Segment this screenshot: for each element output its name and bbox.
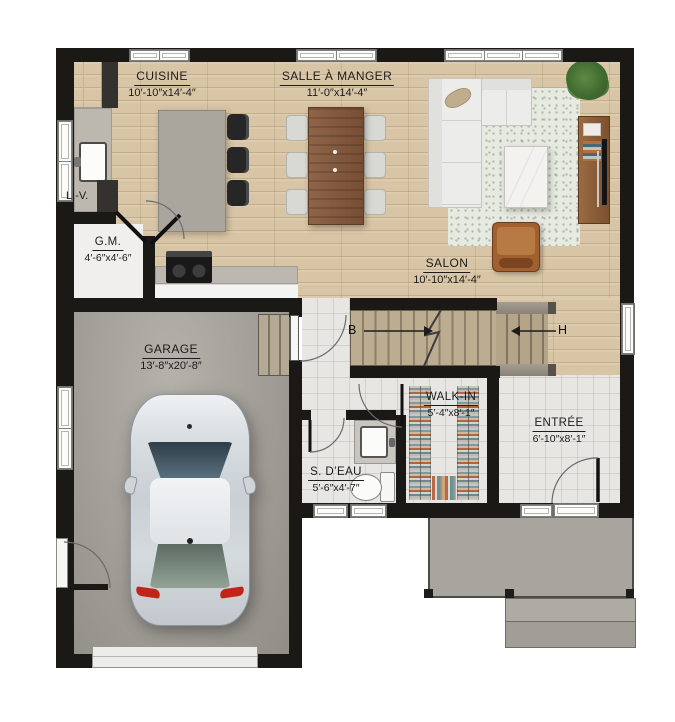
tv-screen [602,139,607,205]
vanity-sink [360,426,388,458]
garage-entry-steps [258,314,290,376]
entree-name: ENTRÉE [532,417,585,432]
window-pane [59,388,71,428]
island-stool [227,114,249,140]
tv-console [578,116,610,224]
dining-chair [364,115,386,141]
kitchen-cabinet-band [155,284,298,298]
walkin-label: WALK-IN 5′-4″x8′-1″ [424,387,478,419]
console-decor-white [583,123,601,136]
stairs-up-letter: H [558,323,567,337]
island-stool [227,180,249,206]
wall-stairs-top [350,298,497,310]
wall-sdeau-top-a [302,410,311,420]
window-pane [522,506,551,516]
cuisine-label: CUISINE 10′-10″x14′-4″ [128,67,196,99]
stairs-down-flight [350,310,497,366]
entree-dims: 6′-10″x8′-1″ [532,433,585,445]
salle-a-manger-name: SALLE À MANGER [280,70,394,86]
car-roof [150,478,230,544]
counter-end-cabinet [97,180,118,214]
railing-cap [548,302,556,314]
kitchen-island [158,110,226,232]
lave-vaisselle-label: L.-V. [66,190,88,202]
porch-post [424,589,433,598]
window-pane [352,506,385,516]
entree-label: ENTRÉE 6′-10″x8′-1″ [532,413,585,445]
walkin-dims: 5′-4″x8′-1″ [424,407,478,419]
wall-gm-right [143,236,155,298]
toilet-tank [380,472,395,502]
kitchen-sink [79,142,107,182]
table-candle [333,150,337,154]
garage-label: GARAGE 13′-8″x20′-8″ [140,340,201,372]
wall-sdeau-walkin [396,415,406,505]
stove [166,251,212,283]
window-top-salon [444,49,563,62]
window-right-entree [621,303,635,355]
car [128,392,252,628]
window-top-kitchen [129,49,190,62]
garage-door [92,646,258,668]
window-pane [555,505,597,516]
stairs-up-railing-top [496,302,556,314]
gm-name: G.M. [93,236,124,251]
wall-stairs-bottom [350,366,500,378]
car-hood-emblem [187,424,192,429]
cuisine-dims: 10′-10″x14′-4″ [128,87,196,100]
window-pane [446,51,484,60]
armchair [492,222,540,272]
dining-chair [286,152,308,178]
window-top-dining [296,49,377,62]
salon-name: SALON [424,257,471,273]
window-pane [59,429,71,469]
salle-a-manger-dims: 11′-0″x14′-4″ [280,87,394,100]
garage-side-door-opening [56,538,68,588]
wall-garage-right-lower [289,360,302,654]
garage-dims: 13′-8″x20′-8″ [140,360,201,373]
dining-chair [286,115,308,141]
window-sdeau-2 [350,504,387,518]
porch-step [505,621,636,648]
car-antenna [187,538,193,544]
vanity-faucet [389,438,395,447]
window-pane [315,506,346,516]
plant [566,60,608,100]
garage-hall-door-leaf [290,315,299,361]
wall-garage-top [56,298,302,312]
front-door-threshold [553,503,599,518]
dining-chair [286,189,308,215]
sdeau-name: S. D’EAU [308,466,364,481]
window-pane [523,51,561,60]
stairs-up-railing-bottom [496,364,556,376]
armchair-cushion [497,227,535,255]
porch-post [626,589,634,598]
salle-a-manger-label: SALLE À MANGER 11′-0″x14′-4″ [280,67,394,99]
window-entree-sidelight [520,504,553,518]
island-stool [227,147,249,173]
window-pane [337,51,375,60]
window-pane [59,122,71,161]
porch-step [505,598,636,623]
window-left-garage [57,386,73,470]
salon-dims: 10′-10″x14′-4″ [413,274,481,287]
window-pane [160,51,188,60]
stairs-up-flight [496,314,548,364]
garage-name: GARAGE [142,343,200,359]
car-rear-window [148,544,232,588]
kitchen-faucet [74,157,81,167]
wall-walkin-entree [487,366,499,505]
walkin-name: WALK-IN [424,391,478,406]
wall-sdeau-top-b [346,410,396,420]
soundbar [597,151,599,207]
cuisine-name: CUISINE [134,70,189,86]
stairs-down-letter: B [348,323,356,337]
window-pane [623,305,633,353]
front-porch [428,518,634,598]
table-candle [333,168,337,172]
window-pane [131,51,159,60]
walkin-shoe-row [432,476,456,500]
floor-plan: CUISINE 10′-10″x14′-4″ SALLE À MANGER 11… [0,0,675,722]
salon-label: SALON 10′-10″x14′-4″ [413,254,481,286]
wall-gm-top [56,212,116,224]
dining-chair [364,152,386,178]
sdeau-label: S. D’EAU 5′-6″x4′-7″ [308,462,364,494]
window-pane [485,51,523,60]
gm-dims: 4′-6″x4′-6″ [85,252,132,264]
sectional-sofa-chaise [482,78,532,126]
dining-chair [364,189,386,215]
coffee-table [504,146,548,208]
wall-right [620,48,634,518]
vanity [354,420,396,464]
dining-table [308,107,364,225]
garage-side-door-leaf [64,584,108,590]
railing-cap [548,364,556,376]
armchair-backrest [499,258,533,268]
gm-label: G.M. 4′-6″x4′-6″ [85,232,132,264]
pantry-cabinet [102,58,118,108]
porch-post [505,589,514,598]
window-sdeau-1 [313,504,348,518]
sdeau-dims: 5′-6″x4′-7″ [308,482,364,494]
window-pane [298,51,336,60]
